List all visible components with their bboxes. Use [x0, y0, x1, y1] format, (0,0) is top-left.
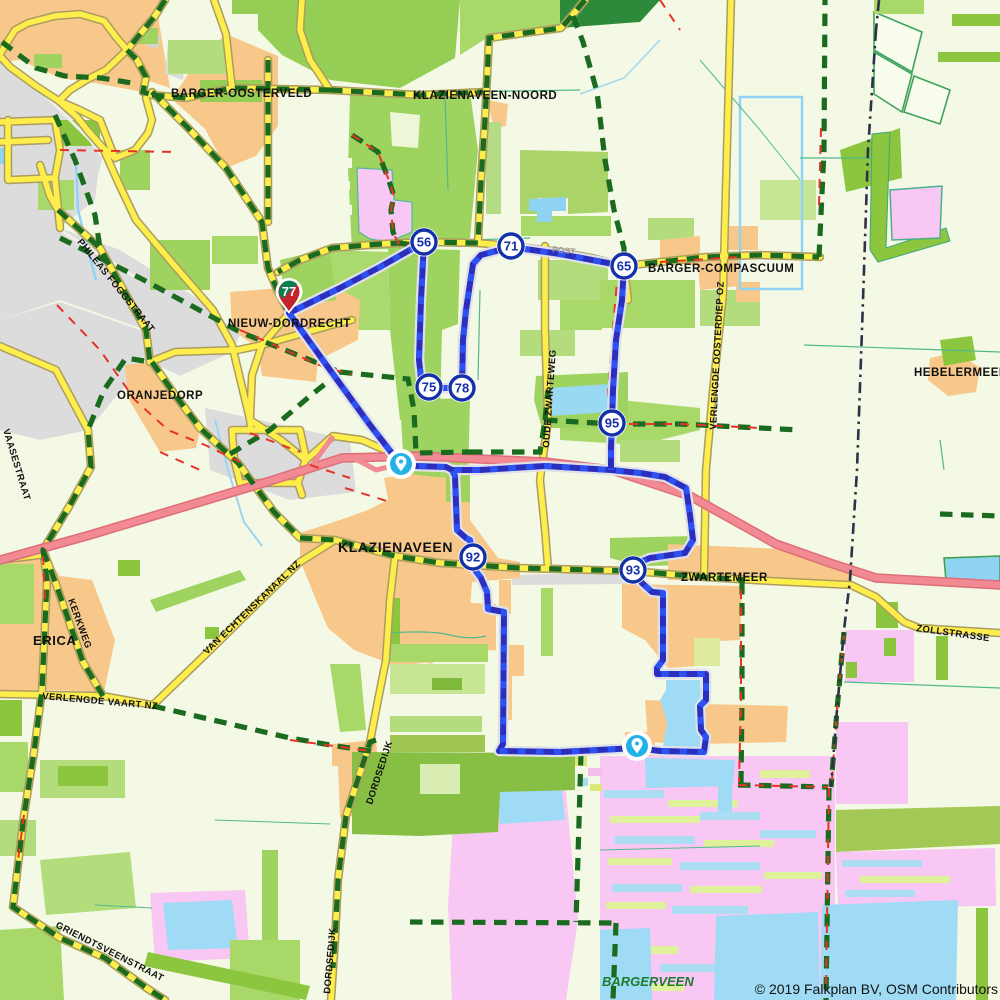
- svg-text:© 2019 Falkplan BV, OSM Contri: © 2019 Falkplan BV, OSM Contributors: [755, 981, 998, 997]
- svg-text:BARGERVEEN: BARGERVEEN: [602, 974, 694, 989]
- svg-text:KLAZIENAVEEN-NOORD: KLAZIENAVEEN-NOORD: [413, 90, 557, 102]
- svg-text:75: 75: [422, 380, 436, 395]
- svg-text:ORANJEDORP: ORANJEDORP: [117, 390, 203, 402]
- svg-text:ZWARTEMEER: ZWARTEMEER: [681, 572, 768, 584]
- svg-text:93: 93: [626, 563, 640, 578]
- svg-text:HEBELERMEER: HEBELERMEER: [914, 367, 1000, 379]
- svg-text:ERICA: ERICA: [33, 633, 76, 648]
- svg-text:BARGER-OOSTERVELD: BARGER-OOSTERVELD: [171, 88, 312, 100]
- svg-text:92: 92: [466, 550, 480, 565]
- svg-text:KLAZIENAVEEN: KLAZIENAVEEN: [338, 539, 453, 555]
- svg-text:78: 78: [455, 381, 469, 396]
- svg-text:BARGER-COMPASCUUM: BARGER-COMPASCUUM: [648, 263, 794, 275]
- svg-text:77: 77: [282, 284, 296, 299]
- svg-text:95: 95: [605, 416, 619, 431]
- svg-text:56: 56: [417, 235, 431, 250]
- svg-text:71: 71: [504, 239, 518, 254]
- svg-text:NIEUW-DORDRECHT: NIEUW-DORDRECHT: [228, 318, 351, 330]
- svg-text:65: 65: [617, 259, 631, 274]
